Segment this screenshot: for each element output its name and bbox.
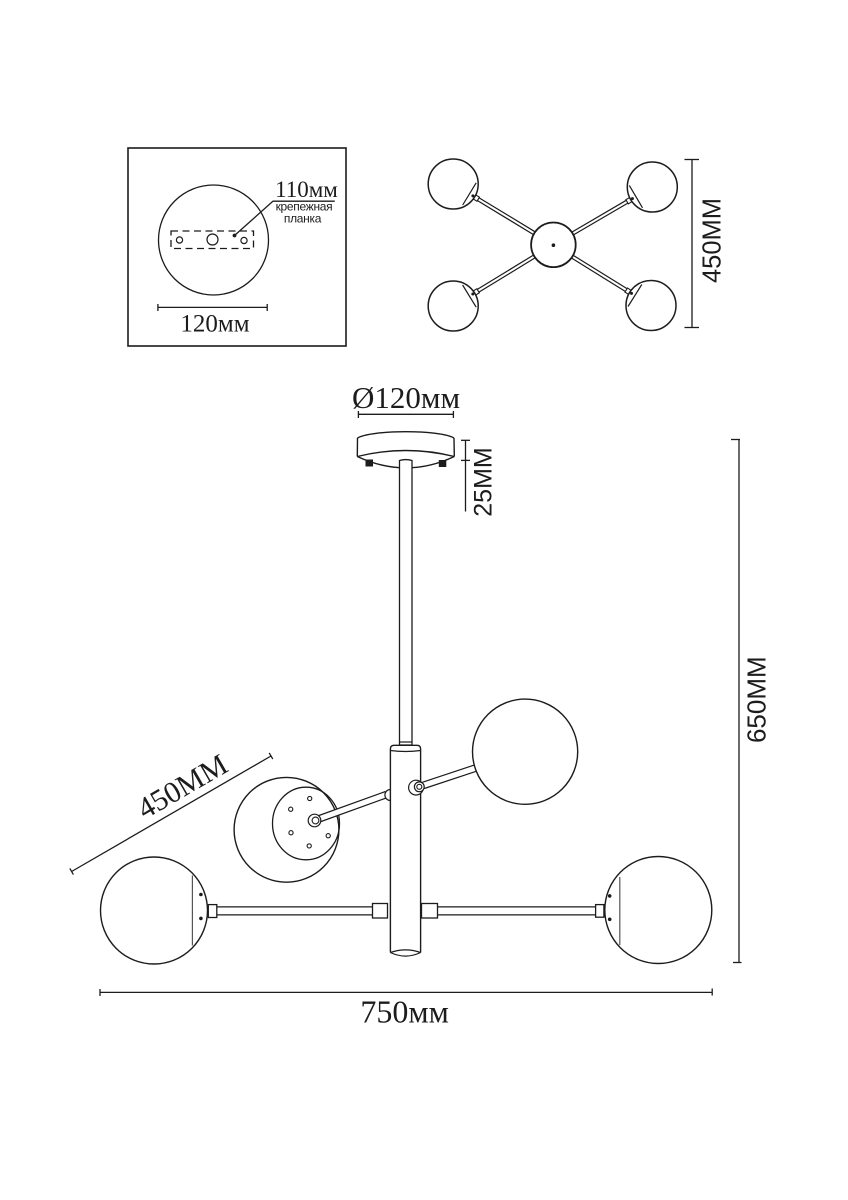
svg-text:планка: планка <box>284 211 322 225</box>
svg-text:450ММ: 450ММ <box>699 198 727 283</box>
svg-text:110мм: 110мм <box>275 177 338 202</box>
svg-text:Ø120мм: Ø120мм <box>352 380 460 415</box>
svg-text:650ММ: 650ММ <box>742 656 772 743</box>
svg-text:25ММ: 25ММ <box>470 447 498 516</box>
svg-text:120мм: 120мм <box>180 310 249 337</box>
svg-text:750мм: 750мм <box>360 994 449 1030</box>
